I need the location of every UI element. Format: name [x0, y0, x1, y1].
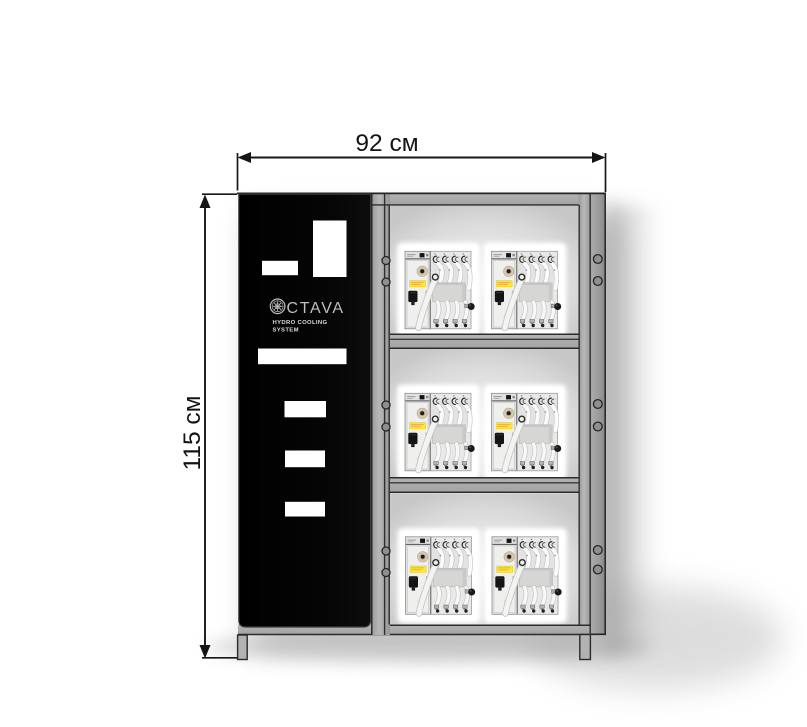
svg-text:SYSTEM: SYSTEM — [273, 328, 299, 334]
svg-text:CTAVA: CTAVA — [287, 300, 345, 317]
svg-text:115 см: 115 см — [179, 396, 206, 471]
svg-text:HYDRO COOLING: HYDRO COOLING — [273, 320, 328, 326]
svg-text:92 см: 92 см — [355, 130, 418, 157]
